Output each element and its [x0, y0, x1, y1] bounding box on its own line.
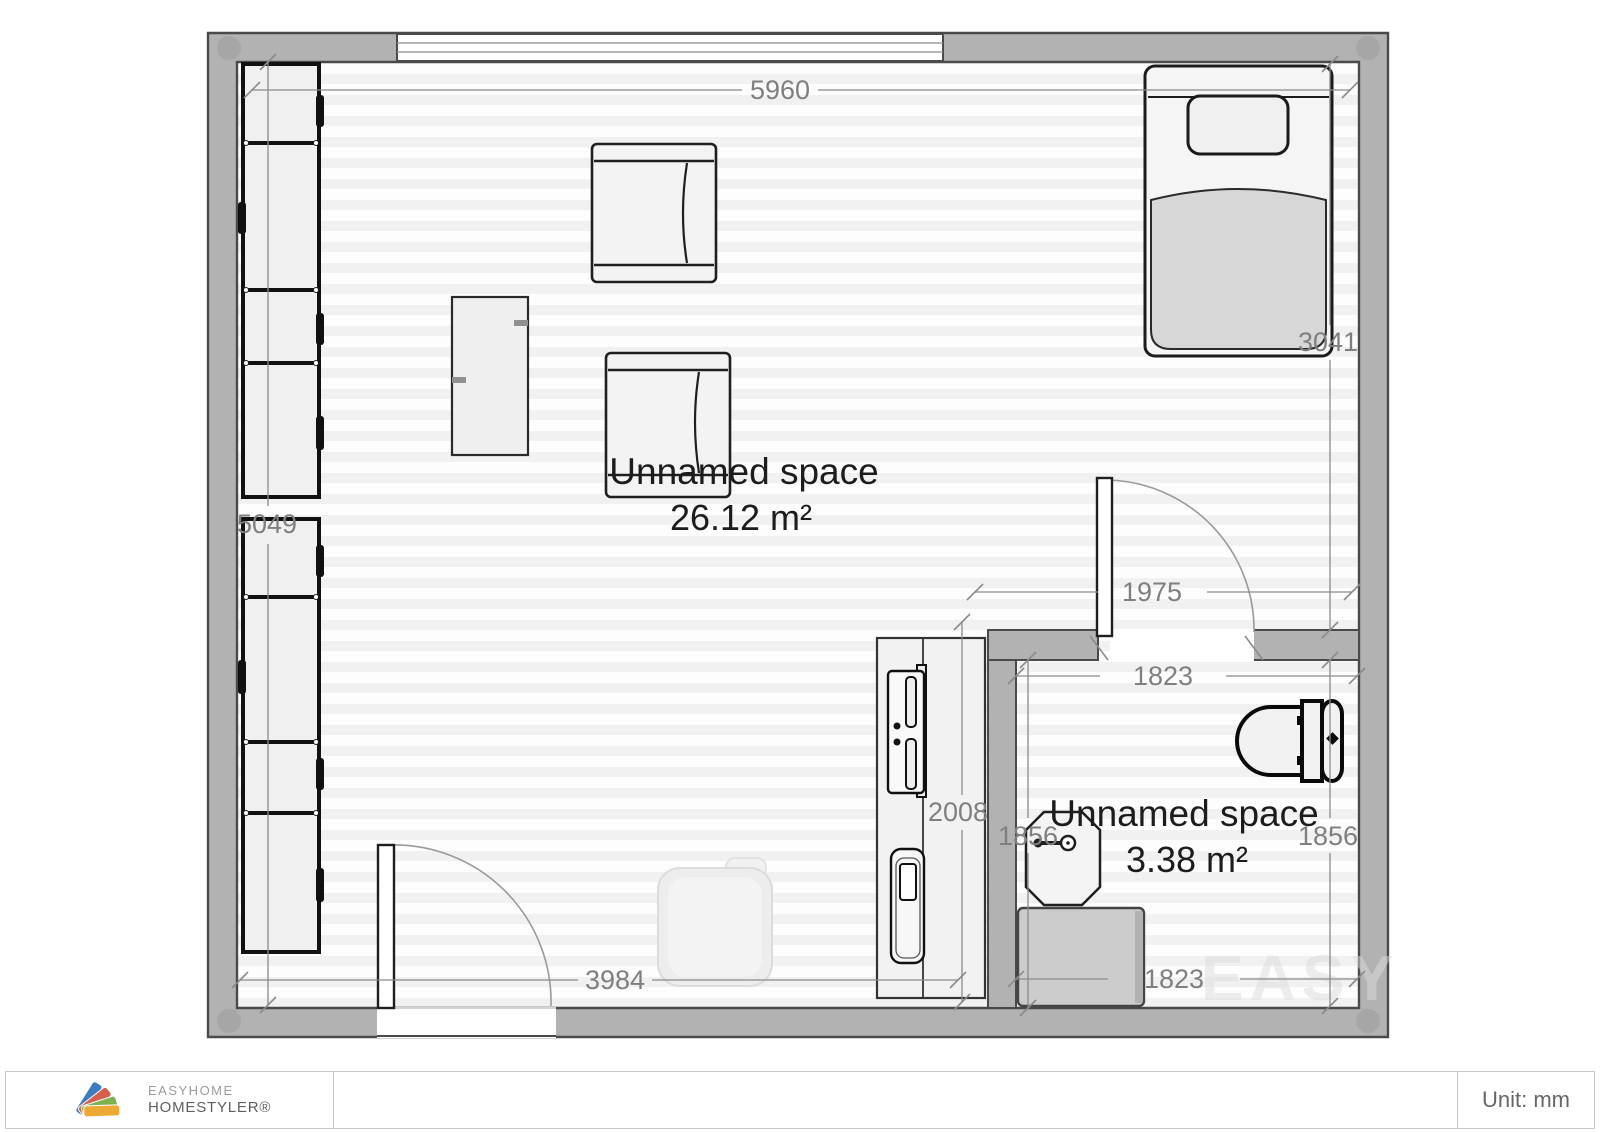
washer-box[interactable] — [1018, 908, 1144, 1006]
footer-spacer — [334, 1072, 1458, 1128]
wardrobe-handle — [238, 202, 246, 234]
bed-mattress — [1151, 189, 1326, 349]
kitchen-sink — [891, 849, 924, 963]
door-leaf — [1097, 478, 1112, 636]
wardrobe-upper[interactable] — [238, 64, 324, 497]
cooktop — [888, 665, 926, 797]
bathroom-label[interactable]: Unnamed space — [1049, 793, 1318, 834]
window[interactable] — [397, 34, 943, 61]
dim-right-upper: 3041 — [1298, 327, 1358, 357]
wardrobe-handle — [316, 868, 324, 902]
living-room-label[interactable]: Unnamed space — [609, 451, 878, 492]
dim-bath-entry: 1975 — [1122, 577, 1182, 607]
bathroom-door-threshold — [1110, 629, 1254, 661]
wardrobe-handle — [238, 660, 246, 694]
door-leaf — [378, 845, 394, 1008]
wardrobe-lower[interactable] — [238, 519, 324, 952]
dim-bottom-span: 3984 — [585, 965, 645, 995]
bathroom-area[interactable]: 3.38 m² — [1126, 839, 1248, 880]
dim-bath-width-top: 1823 — [1133, 661, 1193, 691]
cabinet-handle — [514, 320, 528, 326]
armchair-top[interactable] — [592, 144, 716, 282]
footer-bar: EASYHOME HOMESTYLER® Unit: mm — [5, 1071, 1595, 1129]
wardrobe-handle — [316, 545, 324, 577]
side-cabinet[interactable] — [452, 297, 528, 455]
wardrobe-handle — [316, 95, 324, 127]
logo-line1: EASYHOME — [148, 1083, 271, 1099]
toilet[interactable] — [1237, 701, 1342, 781]
homestyler-logo-text: EASYHOME HOMESTYLER® — [148, 1083, 271, 1118]
wardrobe-handle — [316, 758, 324, 790]
wardrobe-handle — [316, 416, 324, 450]
logo-cell: EASYHOME HOMESTYLER® — [6, 1072, 334, 1128]
dim-top-wall: 5960 — [750, 75, 810, 105]
dim-left-wall: 5049 — [237, 509, 297, 539]
dim-bath-width-bottom: 1823 — [1144, 964, 1204, 994]
bed-pillow — [1188, 96, 1288, 154]
wardrobe-handle — [316, 313, 324, 345]
living-room-area[interactable]: 26.12 m² — [670, 497, 812, 538]
unit-label: Unit: mm — [1458, 1072, 1594, 1128]
cabinet-handle — [452, 377, 466, 383]
floor-plan-canvas: EASY 5960 5049 3041 1856 1975 — [0, 0, 1600, 1072]
bed[interactable] — [1145, 66, 1332, 356]
watermark: EASY — [1201, 942, 1399, 1014]
toilet-tank — [1302, 701, 1322, 781]
homestyler-logo-icon — [74, 1076, 122, 1124]
dim-kitchen-counter: 2008 — [928, 797, 988, 827]
logo-line2: HOMESTYLER® — [148, 1099, 271, 1118]
pouf[interactable] — [658, 858, 772, 986]
